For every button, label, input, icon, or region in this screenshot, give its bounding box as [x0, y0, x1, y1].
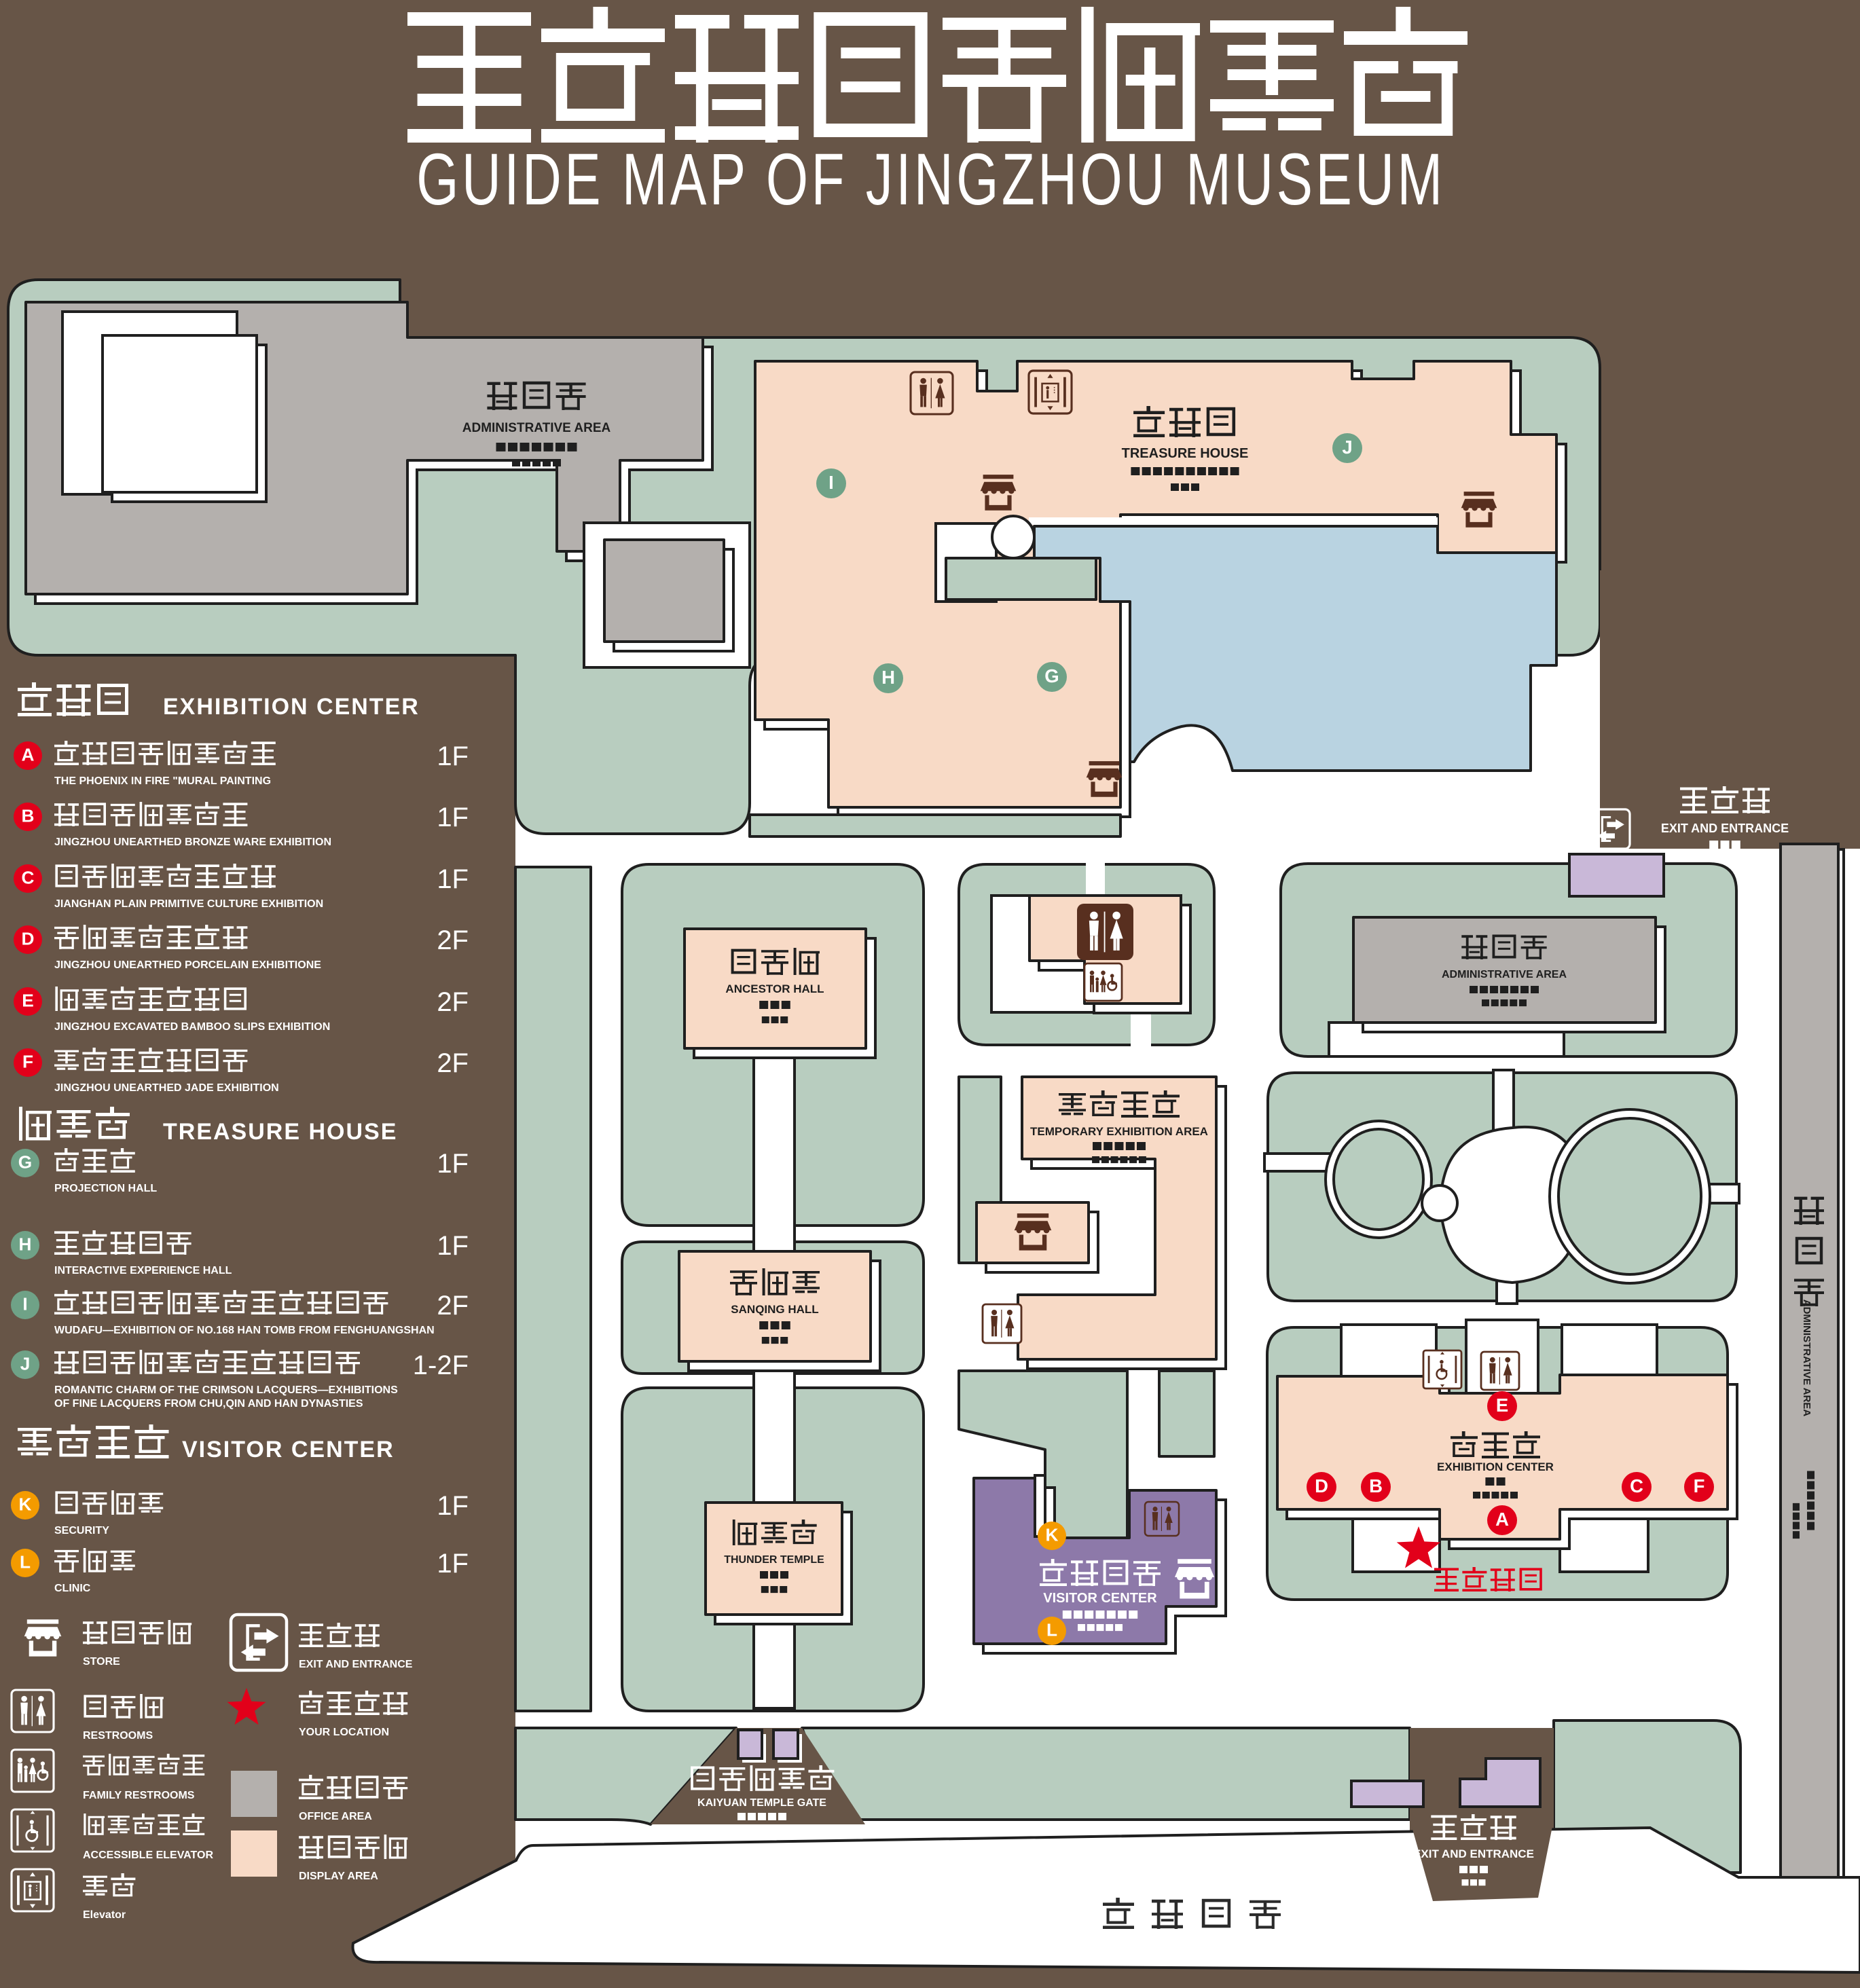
- svg-text:2F: 2F: [437, 987, 469, 1017]
- svg-text:JINGZHOU UNEARTHED JADE EXHIBI: JINGZHOU UNEARTHED JADE EXHIBITION: [54, 1082, 279, 1094]
- svg-text:THUNDER TEMPLE: THUNDER TEMPLE: [724, 1554, 824, 1566]
- svg-text:EXIT AND ENTRANCE: EXIT AND ENTRANCE: [1413, 1847, 1534, 1860]
- svg-text:E: E: [22, 991, 34, 1011]
- svg-text:ANCESTOR HALL: ANCESTOR HALL: [725, 982, 824, 995]
- svg-text:1-2F: 1-2F: [413, 1350, 469, 1380]
- svg-text:F: F: [22, 1052, 33, 1072]
- svg-text:TREASURE HOUSE: TREASURE HOUSE: [163, 1119, 397, 1145]
- svg-text:I: I: [22, 1294, 27, 1314]
- svg-text:E: E: [1496, 1395, 1508, 1416]
- svg-text:ADMINISTRATIVE AREA: ADMINISTRATIVE AREA: [1801, 1300, 1812, 1417]
- svg-text:J: J: [20, 1354, 31, 1374]
- svg-text:JIANGHAN PLAIN PRIMITIVE CULTU: JIANGHAN PLAIN PRIMITIVE CULTURE EXHIBIT…: [54, 898, 323, 910]
- svg-text:ROMANTIC CHARM OF THE CRIMSON: ROMANTIC CHARM OF THE CRIMSON LACQUERS—E…: [54, 1384, 398, 1396]
- svg-text:G: G: [18, 1152, 32, 1173]
- svg-text:RESTROOMS: RESTROOMS: [83, 1730, 153, 1742]
- svg-text:K: K: [19, 1494, 32, 1515]
- svg-text:TREASURE HOUSE: TREASURE HOUSE: [1122, 446, 1249, 461]
- svg-text:SANQING HALL: SANQING HALL: [731, 1303, 818, 1316]
- svg-text:I: I: [828, 472, 834, 493]
- svg-text:1F: 1F: [437, 1231, 469, 1261]
- svg-text:WUDAFU—EXHIBITION OF NO.168 HA: WUDAFU—EXHIBITION OF NO.168 HAN TOMB FRO…: [54, 1325, 435, 1336]
- svg-text:1F: 1F: [437, 1149, 469, 1179]
- svg-text:VISITOR CENTER: VISITOR CENTER: [182, 1437, 395, 1462]
- svg-text:L: L: [20, 1552, 31, 1572]
- svg-text:INTERACTIVE EXPERIENCE HALL: INTERACTIVE EXPERIENCE HALL: [54, 1265, 232, 1276]
- svg-text:1F: 1F: [437, 741, 469, 771]
- svg-text:OF FINE LACQUERS FROM CHU,QIN: OF FINE LACQUERS FROM CHU,QIN AND HAN DY…: [54, 1398, 363, 1410]
- svg-text:GUIDE MAP OF JINGZHOU MUSEUM: GUIDE MAP OF JINGZHOU MUSEUM: [416, 139, 1445, 220]
- svg-text:J: J: [1342, 437, 1352, 458]
- svg-text:JINGZHOU UNEARTHED PORCELAIN E: JINGZHOU UNEARTHED PORCELAIN EXHIBITIONE: [54, 959, 321, 971]
- svg-text:B: B: [1369, 1475, 1383, 1496]
- svg-text:PROJECTION HALL: PROJECTION HALL: [54, 1183, 157, 1194]
- svg-text:K: K: [1046, 1525, 1059, 1545]
- svg-text:EXIT AND ENTRANCE: EXIT AND ENTRANCE: [1661, 822, 1789, 835]
- svg-text:F: F: [1694, 1475, 1705, 1496]
- svg-text:2F: 2F: [437, 1048, 469, 1078]
- svg-text:G: G: [1044, 665, 1059, 686]
- svg-text:ACCESSIBLE ELEVATOR: ACCESSIBLE ELEVATOR: [83, 1849, 213, 1861]
- svg-text:ADMINISTRATIVE AREA: ADMINISTRATIVE AREA: [462, 421, 611, 435]
- svg-text:JINGZHOU UNEARTHED BRONZE WARE: JINGZHOU UNEARTHED BRONZE WARE EXHIBITIO…: [54, 836, 331, 848]
- svg-text:D: D: [22, 929, 35, 949]
- svg-text:STORE: STORE: [83, 1656, 120, 1668]
- svg-text:C: C: [22, 868, 35, 888]
- svg-text:EXHIBITION CENTER: EXHIBITION CENTER: [163, 694, 420, 720]
- svg-text:DISPLAY AREA: DISPLAY AREA: [299, 1871, 378, 1882]
- svg-text:2F: 2F: [437, 1291, 469, 1321]
- svg-text:EXIT AND ENTRANCE: EXIT AND ENTRANCE: [299, 1659, 413, 1670]
- svg-text:1F: 1F: [437, 1549, 469, 1579]
- svg-text:1F: 1F: [437, 864, 469, 894]
- svg-text:FAMILY RESTROOMS: FAMILY RESTROOMS: [83, 1790, 195, 1801]
- svg-text:A: A: [22, 745, 35, 765]
- svg-text:A: A: [1495, 1509, 1509, 1530]
- svg-text:KAIYUAN TEMPLE GATE: KAIYUAN TEMPLE GATE: [697, 1797, 826, 1809]
- svg-text:OFFICE AREA: OFFICE AREA: [299, 1811, 372, 1822]
- svg-text:Elevator: Elevator: [83, 1909, 126, 1921]
- svg-text:CLINIC: CLINIC: [54, 1583, 91, 1594]
- svg-text:D: D: [1315, 1475, 1328, 1496]
- svg-text:VISITOR CENTER: VISITOR CENTER: [1043, 1591, 1157, 1606]
- svg-text:THE PHOENIX IN FIRE "MURAL PAI: THE PHOENIX IN FIRE "MURAL PAINTING: [54, 775, 271, 787]
- svg-text:1F: 1F: [437, 803, 469, 832]
- svg-text:H: H: [19, 1234, 32, 1255]
- svg-text:EXHIBITION CENTER: EXHIBITION CENTER: [1437, 1460, 1554, 1473]
- svg-text:C: C: [1630, 1475, 1643, 1496]
- svg-text:B: B: [22, 806, 35, 826]
- svg-text:H: H: [881, 667, 895, 688]
- svg-text:1F: 1F: [437, 1491, 469, 1521]
- svg-text:YOUR LOCATION: YOUR LOCATION: [299, 1727, 389, 1738]
- svg-text:ADMINISTRATIVE AREA: ADMINISTRATIVE AREA: [1442, 969, 1567, 980]
- svg-text:2F: 2F: [437, 925, 469, 955]
- svg-text:L: L: [1046, 1620, 1057, 1640]
- svg-text:JINGZHOU EXCAVATED BAMBOO SLIP: JINGZHOU EXCAVATED BAMBOO SLIPS EXHIBITI…: [54, 1021, 330, 1033]
- svg-text:SECURITY: SECURITY: [54, 1525, 109, 1536]
- svg-text:TEMPORARY EXHIBITION AREA: TEMPORARY EXHIBITION AREA: [1030, 1125, 1208, 1138]
